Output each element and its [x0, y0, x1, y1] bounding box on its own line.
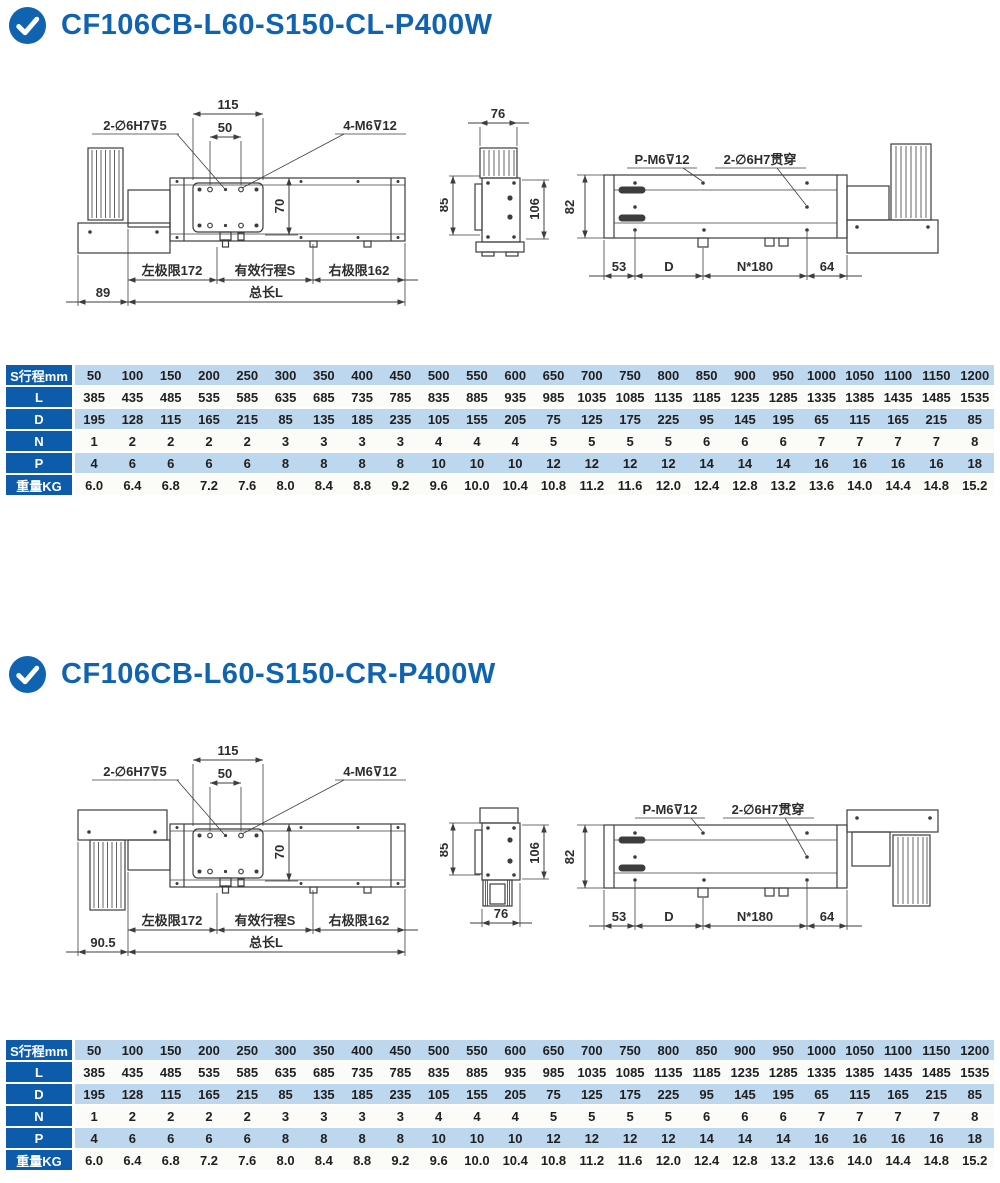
spec-cell: 700 [573, 365, 611, 385]
spec-cell: 6.0 [75, 1150, 113, 1170]
spec-cell: 85 [266, 409, 304, 429]
spec-cell: 14 [688, 1128, 726, 1148]
spec-cell: 215 [917, 1084, 955, 1104]
spec-cell: 10.8 [534, 475, 572, 495]
spec-cell: 900 [726, 1040, 764, 1060]
spec-cell: 8.8 [343, 475, 381, 495]
spec-cell: 10.8 [534, 1150, 572, 1170]
spec-cell: 6.8 [152, 475, 190, 495]
spec-row-label: 重量KG [6, 1150, 75, 1170]
spec-cell: 8 [955, 431, 994, 451]
spec-cell: 9.6 [420, 1150, 458, 1170]
spec-cell: 3 [266, 431, 304, 451]
dim-50-label: 50 [218, 120, 232, 135]
spec-cell: 10.4 [496, 475, 534, 495]
spec-row-label: S行程mm [6, 1040, 75, 1060]
spec-cell: 1235 [726, 1062, 764, 1082]
spec-cell: 3 [381, 431, 419, 451]
spec-cell: 885 [458, 387, 496, 407]
spec-cell: 850 [688, 1040, 726, 1060]
spec-cell: 2 [190, 431, 228, 451]
spec-cell: 750 [611, 365, 649, 385]
left-limit-label: 左极限172 [142, 263, 203, 278]
spec-cell: 2 [228, 1106, 266, 1126]
spec-cell: 1000 [802, 365, 840, 385]
spec-cell: 215 [228, 409, 266, 429]
spec-table: S行程mm50100150200250300350400450500550600… [6, 1038, 994, 1172]
spec-cell: 3 [266, 1106, 304, 1126]
spec-cell: 225 [649, 1084, 687, 1104]
spec-cell: 4 [458, 1106, 496, 1126]
spec-cell: 12 [534, 1128, 572, 1148]
spec-cell: 15.2 [955, 1150, 994, 1170]
spec-cell: 300 [266, 1040, 304, 1060]
spec-cell: 4 [420, 1106, 458, 1126]
dim-82-label: 82 [562, 200, 577, 214]
dim-106-label: 106 [527, 842, 542, 864]
spec-cell: 7 [879, 1106, 917, 1126]
spec-cell: 215 [228, 1084, 266, 1104]
spec-cell: 8 [381, 453, 419, 473]
spec-cell: 16 [879, 1128, 917, 1148]
thread-callout-label: 4-M6⊽12 [343, 118, 397, 133]
dim-D-label: D [664, 909, 673, 924]
spec-row: D195128115165215851351852351051552057512… [6, 1084, 994, 1104]
spec-cell: 7 [802, 1106, 840, 1126]
spec-cell: 128 [113, 1084, 151, 1104]
spec-cell: 50 [75, 365, 113, 385]
spec-cell: 5 [649, 431, 687, 451]
spec-row-label: L [6, 1062, 75, 1082]
spec-cell: 1235 [726, 387, 764, 407]
spec-cell: 700 [573, 1040, 611, 1060]
spec-cell: 95 [688, 409, 726, 429]
spec-cell: 10 [496, 453, 534, 473]
offset-dim-label: 90.5 [90, 935, 115, 950]
spec-cell: 16 [917, 453, 955, 473]
spec-cell: 5 [573, 1106, 611, 1126]
product-header: CF106CB-L60-S150-CL-P400W [8, 6, 493, 45]
spec-cell: 1150 [917, 365, 955, 385]
spec-cell: 165 [190, 409, 228, 429]
spec-cell: 195 [75, 1084, 113, 1104]
spec-cell: 115 [841, 1084, 879, 1104]
spec-cell: 1135 [649, 1062, 687, 1082]
spec-cell: 3 [305, 431, 343, 451]
spec-cell: 7.2 [190, 1150, 228, 1170]
spec-cell: 14.8 [917, 475, 955, 495]
spec-cell: 105 [420, 1084, 458, 1104]
spec-cell: 11.2 [573, 1150, 611, 1170]
product-section-cr: CF106CB-L60-S150-CR-P400W [0, 645, 1000, 1183]
dim-N180-label: N*180 [737, 259, 773, 274]
spec-cell: 14 [764, 453, 802, 473]
spec-cell: 85 [266, 1084, 304, 1104]
spec-cell: 1100 [879, 1040, 917, 1060]
spec-cell: 800 [649, 1040, 687, 1060]
spec-cell: 15.2 [955, 475, 994, 495]
spec-cell: 685 [305, 1062, 343, 1082]
spec-cell: 13.6 [802, 475, 840, 495]
spec-cell: 2 [152, 431, 190, 451]
spec-cell: 115 [841, 409, 879, 429]
spec-cell: 7.6 [228, 475, 266, 495]
spec-cell: 6 [688, 1106, 726, 1126]
dim-85-label: 85 [440, 198, 451, 212]
spec-cell: 1385 [841, 387, 879, 407]
spec-cell: 1 [75, 431, 113, 451]
dim-50-label: 50 [218, 766, 232, 781]
spec-cell: 4 [420, 431, 458, 451]
spec-cell: 1285 [764, 1062, 802, 1082]
spec-cell: 8.0 [266, 475, 304, 495]
spec-cell: 225 [649, 409, 687, 429]
spec-cell: 1435 [879, 387, 917, 407]
spec-cell: 550 [458, 1040, 496, 1060]
dim-76-label: 76 [491, 106, 505, 121]
spec-cell: 9.6 [420, 475, 458, 495]
dim-85-label: 85 [440, 843, 451, 857]
spec-row-label: L [6, 387, 75, 407]
spec-cell: 115 [152, 409, 190, 429]
spec-cell: 16 [841, 1128, 879, 1148]
spec-cell: 500 [420, 365, 458, 385]
spec-cell: 13.2 [764, 1150, 802, 1170]
spec-cell: 150 [152, 365, 190, 385]
spec-row-label: S行程mm [6, 365, 75, 385]
spec-cell: 14 [726, 1128, 764, 1148]
spec-cell: 1285 [764, 387, 802, 407]
spec-cell: 14 [688, 453, 726, 473]
spec-cell: 7.6 [228, 1150, 266, 1170]
spec-cell: 8.4 [305, 1150, 343, 1170]
cl-bottom-view-drawing: 82 P-M6⊽12 2-∅6H7贯穿 [555, 128, 1000, 303]
spec-cell: 500 [420, 1040, 458, 1060]
spec-cell: 6 [190, 1128, 228, 1148]
spec-cell: 6 [113, 453, 151, 473]
spec-cell: 6 [726, 431, 764, 451]
dim-70-label: 70 [272, 845, 287, 859]
spec-cell: 185 [343, 409, 381, 429]
spec-row-label: N [6, 1106, 75, 1126]
spec-cell: 385 [75, 387, 113, 407]
dim-115-label: 115 [218, 743, 239, 758]
spec-cell: 800 [649, 365, 687, 385]
spec-cell: 585 [228, 387, 266, 407]
spec-cell: 535 [190, 387, 228, 407]
hole-callout-label: 2-∅6H7⊽5 [103, 764, 166, 779]
spec-cell: 135 [305, 409, 343, 429]
spec-cell: 4 [75, 1128, 113, 1148]
spec-row-label: P [6, 1128, 75, 1148]
spec-cell: 6 [688, 431, 726, 451]
spec-cell: 2 [190, 1106, 228, 1126]
spec-row: L385435485535585635685735785835885935985… [6, 387, 994, 407]
product-header: CF106CB-L60-S150-CR-P400W [8, 655, 496, 694]
total-length-label: 总长L [249, 285, 283, 300]
spec-cell: 950 [764, 1040, 802, 1060]
spec-row: S行程mm50100150200250300350400450500550600… [6, 365, 994, 385]
spec-cell: 6 [190, 453, 228, 473]
spec-cell: 7 [802, 431, 840, 451]
spec-cell: 3 [305, 1106, 343, 1126]
spec-cell: 1150 [917, 1040, 955, 1060]
spec-cell: 2 [113, 1106, 151, 1126]
spec-cell: 5 [573, 431, 611, 451]
spec-cell: 935 [496, 1062, 534, 1082]
spec-cell: 85 [955, 1084, 994, 1104]
dim-70-label: 70 [272, 199, 287, 213]
spec-cell: 75 [534, 1084, 572, 1104]
spec-cell: 1085 [611, 387, 649, 407]
dim-53-label: 53 [612, 909, 626, 924]
spec-cell: 785 [381, 1062, 419, 1082]
spec-cell: 1535 [955, 1062, 994, 1082]
spec-cell: 14 [764, 1128, 802, 1148]
spec-cell: 16 [917, 1128, 955, 1148]
spec-cell: 835 [420, 1062, 458, 1082]
spec-cell: 7 [917, 431, 955, 451]
spec-cell: 900 [726, 365, 764, 385]
spec-cell: 735 [343, 1062, 381, 1082]
spec-cell: 8.0 [266, 1150, 304, 1170]
spec-cell: 1035 [573, 387, 611, 407]
spec-cell: 1100 [879, 365, 917, 385]
spec-cell: 195 [764, 1084, 802, 1104]
spec-cell: 635 [266, 1062, 304, 1082]
spec-cell: 14 [726, 453, 764, 473]
spec-cell: 400 [343, 1040, 381, 1060]
spec-cell: 1485 [917, 1062, 955, 1082]
spec-cell: 5 [534, 431, 572, 451]
spec-cell: 5 [649, 1106, 687, 1126]
spec-row: L385435485535585635685735785835885935985… [6, 1062, 994, 1082]
spec-cell: 165 [879, 409, 917, 429]
spec-cell: 105 [420, 409, 458, 429]
spec-cell: 1050 [841, 365, 879, 385]
spec-cell: 2 [152, 1106, 190, 1126]
spec-cell: 8 [343, 1128, 381, 1148]
spec-cell: 8 [266, 453, 304, 473]
spec-cell: 100 [113, 365, 151, 385]
spec-cell: 8.8 [343, 1150, 381, 1170]
spec-cell: 485 [152, 387, 190, 407]
stroke-label: 有效行程S [235, 913, 296, 928]
spec-row: D195128115165215851351852351051552057512… [6, 409, 994, 429]
spec-cell: 4 [496, 1106, 534, 1126]
spec-cell: 195 [764, 409, 802, 429]
spec-row-label: D [6, 409, 75, 429]
spec-cell: 7 [841, 1106, 879, 1126]
spec-cell: 2 [113, 431, 151, 451]
spec-row: S行程mm50100150200250300350400450500550600… [6, 1040, 994, 1060]
spec-cell: 2 [228, 431, 266, 451]
spec-cell: 300 [266, 365, 304, 385]
spec-cell: 10 [458, 1128, 496, 1148]
spec-cell: 10.4 [496, 1150, 534, 1170]
spec-cell: 9.2 [381, 1150, 419, 1170]
spec-cell: 10 [420, 1128, 458, 1148]
spec-cell: 535 [190, 1062, 228, 1082]
spec-cell: 10.0 [458, 1150, 496, 1170]
spec-cell: 65 [802, 409, 840, 429]
spec-cell: 205 [496, 409, 534, 429]
spec-cell: 12 [573, 1128, 611, 1148]
spec-cell: 550 [458, 365, 496, 385]
spec-cell: 14.8 [917, 1150, 955, 1170]
spec-cell: 10 [458, 453, 496, 473]
left-limit-label: 左极限172 [142, 913, 203, 928]
spec-cell: 1385 [841, 1062, 879, 1082]
spec-cell: 135 [305, 1084, 343, 1104]
dim-64-label: 64 [820, 909, 835, 924]
through-hole-label: 2-∅6H7贯穿 [732, 802, 805, 817]
spec-cell: 14.0 [841, 475, 879, 495]
spec-cell: 12 [649, 1128, 687, 1148]
dim-64-label: 64 [820, 259, 835, 274]
dim-82-label: 82 [562, 850, 577, 864]
spec-cell: 600 [496, 365, 534, 385]
spec-cell: 5 [611, 1106, 649, 1126]
spec-cell: 3 [343, 1106, 381, 1126]
spec-row-label: 重量KG [6, 475, 75, 495]
spec-cell: 1085 [611, 1062, 649, 1082]
spec-row: N122223333444555566677778 [6, 431, 994, 451]
spec-cell: 100 [113, 1040, 151, 1060]
spec-cell: 6 [764, 431, 802, 451]
spec-cell: 11.2 [573, 475, 611, 495]
spec-cell: 8.4 [305, 475, 343, 495]
total-length-label: 总长L [249, 935, 283, 950]
spec-cell: 8 [343, 453, 381, 473]
spec-cell: 14.4 [879, 1150, 917, 1170]
spec-cell: 185 [343, 1084, 381, 1104]
spec-cell: 6 [764, 1106, 802, 1126]
spec-cell: 985 [534, 387, 572, 407]
hole-callout-label: 2-∅6H7⊽5 [103, 118, 166, 133]
spec-cell: 7.2 [190, 475, 228, 495]
spec-cell: 5 [611, 431, 649, 451]
spec-cell: 385 [75, 1062, 113, 1082]
spec-cell: 16 [879, 453, 917, 473]
cr-bottom-view-drawing: 82 P-M6⊽12 2-∅6H7贯穿 [555, 778, 1000, 953]
spec-cell: 155 [458, 1084, 496, 1104]
spec-cell: 1535 [955, 387, 994, 407]
spec-table: S行程mm50100150200250300350400450500550600… [6, 363, 994, 497]
spec-cell: 150 [152, 1040, 190, 1060]
spec-cell: 145 [726, 409, 764, 429]
spec-cell: 11.6 [611, 475, 649, 495]
spec-cell: 12.8 [726, 1150, 764, 1170]
spec-cell: 18 [955, 453, 994, 473]
spec-cell: 635 [266, 387, 304, 407]
spec-cell: 6.4 [113, 475, 151, 495]
right-limit-label: 右极限162 [328, 913, 390, 928]
spec-row: 重量KG6.06.46.87.27.68.08.48.89.29.610.010… [6, 475, 994, 495]
spec-cell: 985 [534, 1062, 572, 1082]
spec-cell: 235 [381, 1084, 419, 1104]
spec-cell: 12 [534, 453, 572, 473]
dim-D-label: D [664, 259, 673, 274]
spec-cell: 600 [496, 1040, 534, 1060]
spec-cell: 1135 [649, 387, 687, 407]
spec-cell: 8 [266, 1128, 304, 1148]
spec-cell: 10 [420, 453, 458, 473]
spec-cell: 12 [573, 453, 611, 473]
spec-cell: 16 [841, 453, 879, 473]
spec-cell: 12.4 [688, 475, 726, 495]
spec-cell: 1435 [879, 1062, 917, 1082]
spec-cell: 12 [649, 453, 687, 473]
spec-cell: 12.8 [726, 475, 764, 495]
spec-cell: 125 [573, 1084, 611, 1104]
dim-115-label: 115 [218, 97, 239, 112]
spec-cell: 250 [228, 365, 266, 385]
spec-cell: 12.0 [649, 1150, 687, 1170]
spec-row-label: N [6, 431, 75, 451]
spec-cell: 1050 [841, 1040, 879, 1060]
spec-cell: 1200 [955, 1040, 994, 1060]
spec-cell: 750 [611, 1040, 649, 1060]
spec-cell: 4 [75, 453, 113, 473]
spec-cell: 175 [611, 1084, 649, 1104]
spec-cell: 195 [75, 409, 113, 429]
spec-cell: 835 [420, 387, 458, 407]
spec-cell: 5 [534, 1106, 572, 1126]
spec-row-label: D [6, 1084, 75, 1104]
spec-cell: 435 [113, 1062, 151, 1082]
spec-cell: 200 [190, 1040, 228, 1060]
thread-callout-label: 4-M6⊽12 [343, 764, 397, 779]
spec-row-label: P [6, 453, 75, 473]
spec-cell: 4 [496, 431, 534, 451]
catalog-page: CF106CB-L60-S150-CL-P400W [0, 0, 1000, 1183]
spec-cell: 6.4 [113, 1150, 151, 1170]
spec-cell: 200 [190, 365, 228, 385]
spec-cell: 6 [228, 1128, 266, 1148]
spec-cell: 205 [496, 1084, 534, 1104]
spec-cell: 145 [726, 1084, 764, 1104]
spec-cell: 1 [75, 1106, 113, 1126]
spec-cell: 1035 [573, 1062, 611, 1082]
spec-row: P466668888101010121212121414141616161618 [6, 1128, 994, 1148]
spec-cell: 13.2 [764, 475, 802, 495]
dim-106-label: 106 [527, 198, 542, 220]
spec-cell: 1185 [688, 1062, 726, 1082]
spec-row: N122223333444555566677778 [6, 1106, 994, 1126]
spec-cell: 7 [841, 431, 879, 451]
spec-cell: 8 [955, 1106, 994, 1126]
spec-cell: 125 [573, 409, 611, 429]
spec-cell: 95 [688, 1084, 726, 1104]
spec-cell: 3 [381, 1106, 419, 1126]
spec-cell: 1335 [802, 1062, 840, 1082]
product-title: CF106CB-L60-S150-CL-P400W [61, 9, 493, 42]
spec-cell: 450 [381, 1040, 419, 1060]
dim-53-label: 53 [612, 259, 626, 274]
spec-cell: 885 [458, 1062, 496, 1082]
spec-cell: 16 [802, 1128, 840, 1148]
spec-cell: 85 [955, 409, 994, 429]
spec-cell: 12.4 [688, 1150, 726, 1170]
spec-cell: 155 [458, 409, 496, 429]
dim-76-label: 76 [494, 906, 508, 921]
cl-front-view-drawing: 115 50 2-∅6H7⊽5 4-M6⊽12 70 [58, 92, 458, 307]
spec-cell: 950 [764, 365, 802, 385]
spec-cell: 14.0 [841, 1150, 879, 1170]
right-limit-label: 右极限162 [328, 263, 390, 278]
spec-cell: 450 [381, 365, 419, 385]
